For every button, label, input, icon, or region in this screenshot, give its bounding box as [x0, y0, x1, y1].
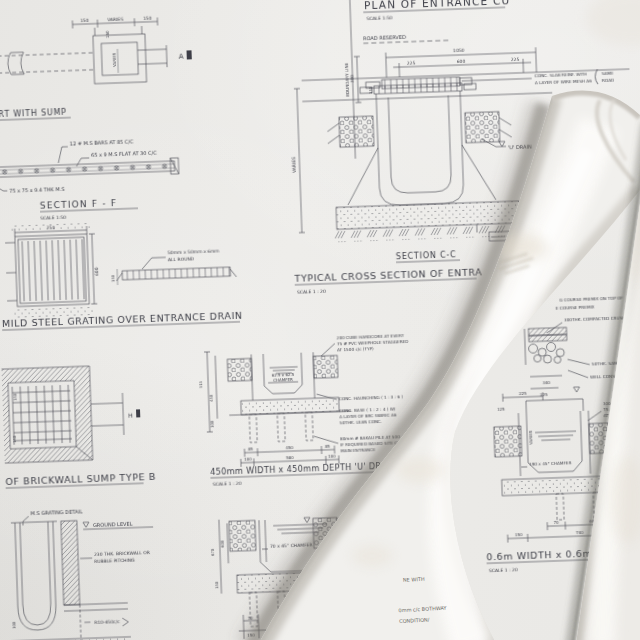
photo-engineering-drawings: 150 VARIES 150 150 VARIES A ERT WITH SUM… — [0, 0, 640, 640]
out-of-focus-paper-corner — [586, 0, 640, 46]
roll-printed-fragment: NE WITH — [403, 576, 425, 583]
paper-rolls-overlay: NE WITH 0mm c/c BOTHWAY CONDITION/ — [0, 0, 640, 640]
